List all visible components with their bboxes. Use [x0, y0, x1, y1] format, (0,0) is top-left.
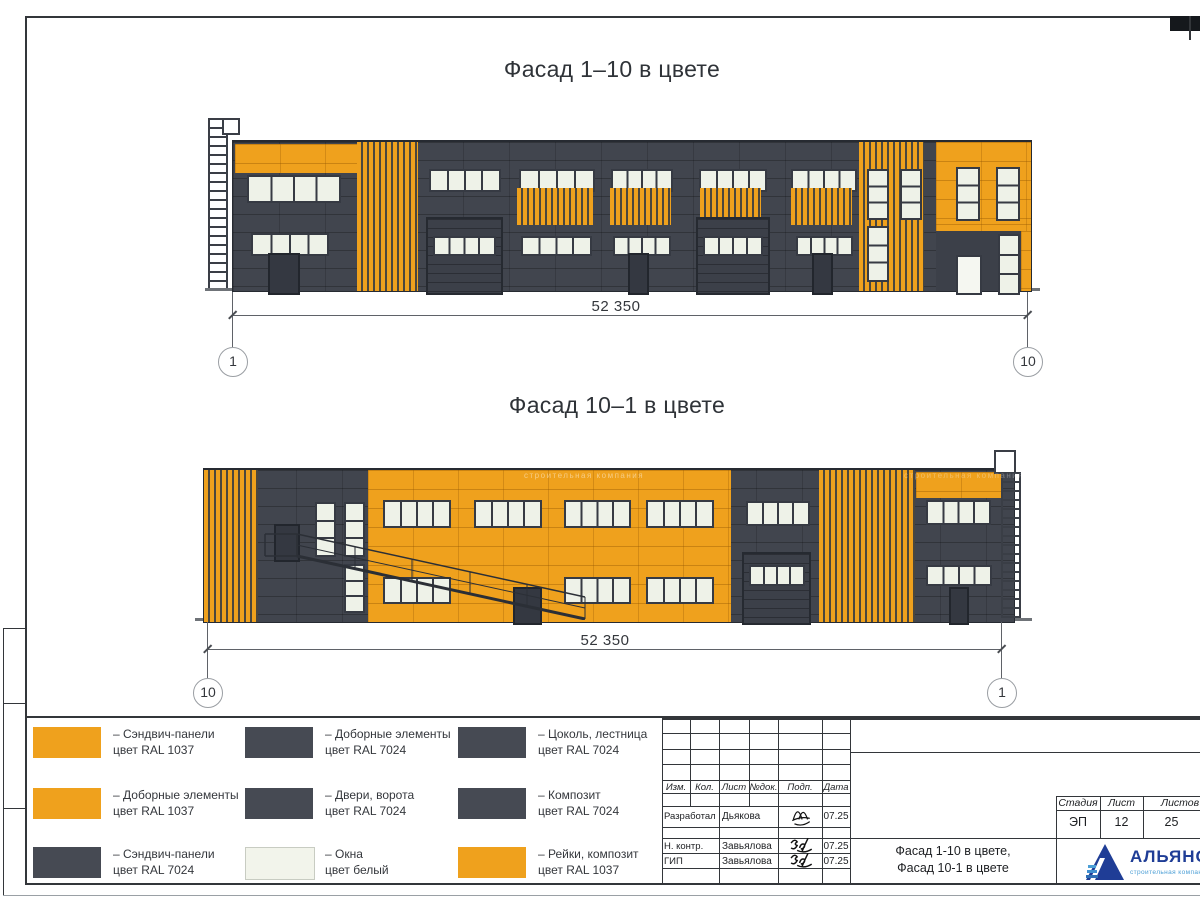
tb-col-kol: Кол. — [690, 782, 719, 794]
tb-date: 07.25 — [822, 840, 850, 853]
facade1-building — [232, 140, 1032, 292]
tb-role: Разработал — [664, 810, 716, 823]
tb-name: Дьякова — [722, 810, 760, 823]
company-subtitle: строительная компания — [1130, 869, 1200, 876]
margin-strip-line — [3, 628, 25, 629]
titleblock-line — [662, 827, 850, 828]
facade1-roof-ladder-icon — [208, 118, 228, 288]
axis-bubble: 1 — [218, 347, 248, 377]
extension-line — [232, 292, 233, 347]
legend-swatch — [458, 847, 526, 878]
titleblock-line — [662, 853, 850, 854]
orange-slat-panel — [517, 188, 593, 225]
legend-label: – Доборные элементыцвет RAL 1037 — [113, 788, 239, 819]
legend-label: – Сэндвич-панелицвет RAL 1037 — [113, 727, 215, 758]
legend-label: – Рейки, композитцвет RAL 1037 — [538, 847, 639, 878]
titleblock-line — [778, 718, 779, 884]
titleblock-line — [662, 806, 850, 807]
titleblock-line — [662, 749, 850, 750]
door — [628, 253, 649, 295]
orange-panel-block — [235, 144, 357, 173]
frame-corner-box — [1170, 16, 1200, 31]
tb-col-data: Дата — [822, 782, 850, 794]
axis-bubble: 1 — [987, 678, 1017, 708]
tb-col-list: Лист — [719, 782, 749, 794]
orange-slat-section — [357, 142, 418, 291]
sheet-edge-bottom — [3, 895, 1200, 896]
door — [268, 253, 300, 295]
tb-date: 07.25 — [822, 810, 850, 823]
legend-swatch — [458, 788, 526, 819]
window-band — [429, 169, 501, 192]
tb-stage-value: ЭП — [1056, 815, 1100, 829]
tb-role: Н. контр. — [664, 840, 703, 853]
facade1-title: Фасад 1–10 в цвете — [382, 56, 842, 83]
gate-window-band — [433, 236, 496, 256]
stairwell-window — [867, 169, 889, 220]
tb-sheets-label: Листов — [1145, 797, 1200, 809]
tb-col-ndok: №док. — [749, 782, 778, 794]
titleblock-line — [662, 838, 850, 839]
orange-pillar — [1021, 231, 1031, 291]
legend-label: – Композитцвет RAL 7024 — [538, 788, 619, 819]
legend-label: – Доборные элементыцвет RAL 7024 — [325, 727, 451, 758]
legend-swatch — [458, 727, 526, 758]
titleblock-line — [719, 718, 720, 884]
drawing-sheet: Фасад 1–10 в цвете — [0, 0, 1200, 900]
tb-stage-label: Стадия — [1056, 797, 1100, 809]
tb-col-podp: Подп. — [778, 782, 822, 794]
company-name: АЛЬЯНС — [1130, 847, 1200, 867]
dimension-line — [207, 649, 1002, 650]
orange-trim-band — [936, 224, 1031, 231]
dimension-value: 52 350 — [505, 632, 705, 649]
facade2-title: Фасад 10–1 в цвете — [387, 392, 847, 419]
legend-swatch — [245, 847, 315, 880]
tb-sheets-value: 25 — [1143, 815, 1200, 829]
frame-bottom-line — [25, 883, 1200, 885]
door — [812, 253, 833, 295]
tb-sheet-value: 12 — [1100, 815, 1143, 829]
gate-window-band — [703, 236, 763, 256]
window-band — [247, 175, 341, 203]
titleblock-line — [662, 780, 850, 781]
tall-window — [996, 167, 1020, 221]
frame-left-line — [25, 16, 27, 885]
extension-line — [1027, 292, 1028, 347]
sectional-gate — [696, 217, 770, 295]
titleblock-line — [662, 718, 663, 884]
external-staircase-icon — [203, 468, 1013, 620]
stairwell-window — [867, 226, 889, 282]
legend-swatch — [33, 788, 101, 819]
legend-swatch — [33, 727, 101, 758]
legend-label: – Окнацвет белый — [325, 847, 389, 878]
orange-slat-panel — [791, 188, 852, 225]
legend-label: – Сэндвич-панелицвет RAL 7024 — [113, 847, 215, 878]
entrance-door — [956, 255, 982, 295]
tb-role: ГИП — [664, 855, 683, 868]
tall-window — [956, 167, 980, 221]
facade1-ladder-cage — [222, 118, 240, 135]
axis-bubble: 10 — [193, 678, 223, 708]
company-logo-icon — [1085, 843, 1125, 881]
tb-col-izm: Изм. — [662, 782, 690, 794]
margin-strip-line — [3, 703, 25, 704]
dimension-value: 52 350 — [516, 298, 716, 315]
titleblock-line — [850, 752, 1200, 753]
tb-doc-title: Фасад 1-10 в цвете, Фасад 10-1 в цвете — [852, 843, 1054, 877]
titleblock-line — [662, 718, 1200, 720]
frame-top-line — [25, 16, 1200, 18]
titleblock-line — [662, 733, 850, 734]
legend-label: – Цоколь, лестницацвет RAL 7024 — [538, 727, 647, 758]
tb-name: Завьялова — [722, 855, 772, 868]
tb-name: Завьялова — [722, 840, 772, 853]
titleblock-line — [662, 868, 850, 869]
legend-swatch — [245, 727, 313, 758]
margin-strip-line — [3, 808, 25, 809]
orange-slat-panel — [610, 188, 671, 225]
sectional-gate — [426, 217, 503, 295]
frame-corner-line — [1189, 16, 1191, 40]
tall-window — [998, 234, 1020, 295]
legend-swatch — [33, 847, 101, 878]
signature — [786, 852, 818, 869]
legend-swatch — [245, 788, 313, 819]
tb-date: 07.25 — [822, 855, 850, 868]
titleblock-line — [850, 718, 851, 884]
titleblock-line — [850, 838, 1200, 839]
sheet-edge-left — [3, 628, 4, 895]
legend-label: – Двери, воротацвет RAL 7024 — [325, 788, 414, 819]
dimension-line — [232, 315, 1028, 316]
window-band — [521, 236, 592, 256]
titleblock-line — [662, 764, 850, 765]
stairwell-window — [900, 169, 922, 220]
axis-bubble: 10 — [1013, 347, 1043, 377]
tb-sheet-label: Лист — [1100, 797, 1143, 809]
signature — [784, 802, 818, 826]
titleblock-line — [1056, 810, 1200, 811]
